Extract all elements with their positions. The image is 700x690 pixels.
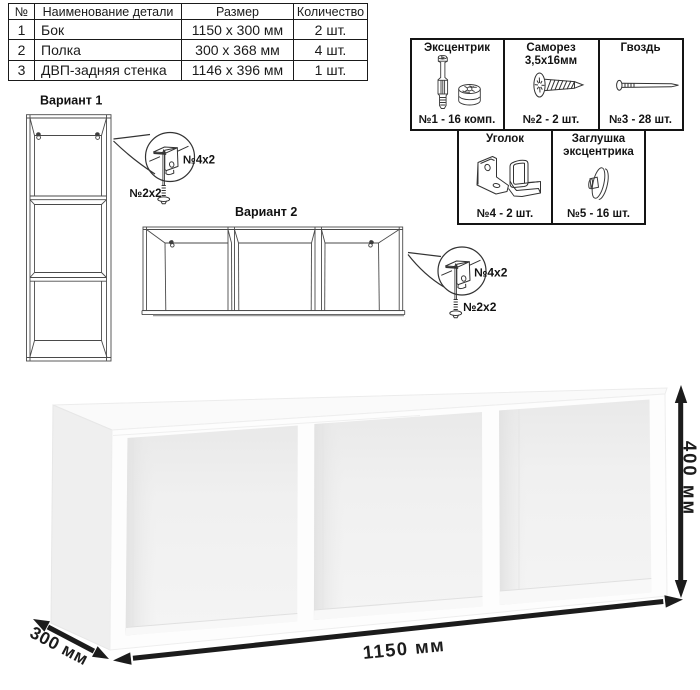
svg-text:№4х2: №4х2 xyxy=(474,266,508,280)
svg-text:№4х2: №4х2 xyxy=(183,155,215,167)
svg-text:Вариант 1: Вариант 1 xyxy=(40,94,102,108)
svg-text:1150 мм: 1150 мм xyxy=(362,634,446,663)
svg-text:400 мм: 400 мм xyxy=(680,441,700,516)
svg-text:№2х2: №2х2 xyxy=(463,300,497,314)
svg-text:№2х2: №2х2 xyxy=(130,188,162,200)
svg-text:Вариант 2: Вариант 2 xyxy=(235,205,297,219)
